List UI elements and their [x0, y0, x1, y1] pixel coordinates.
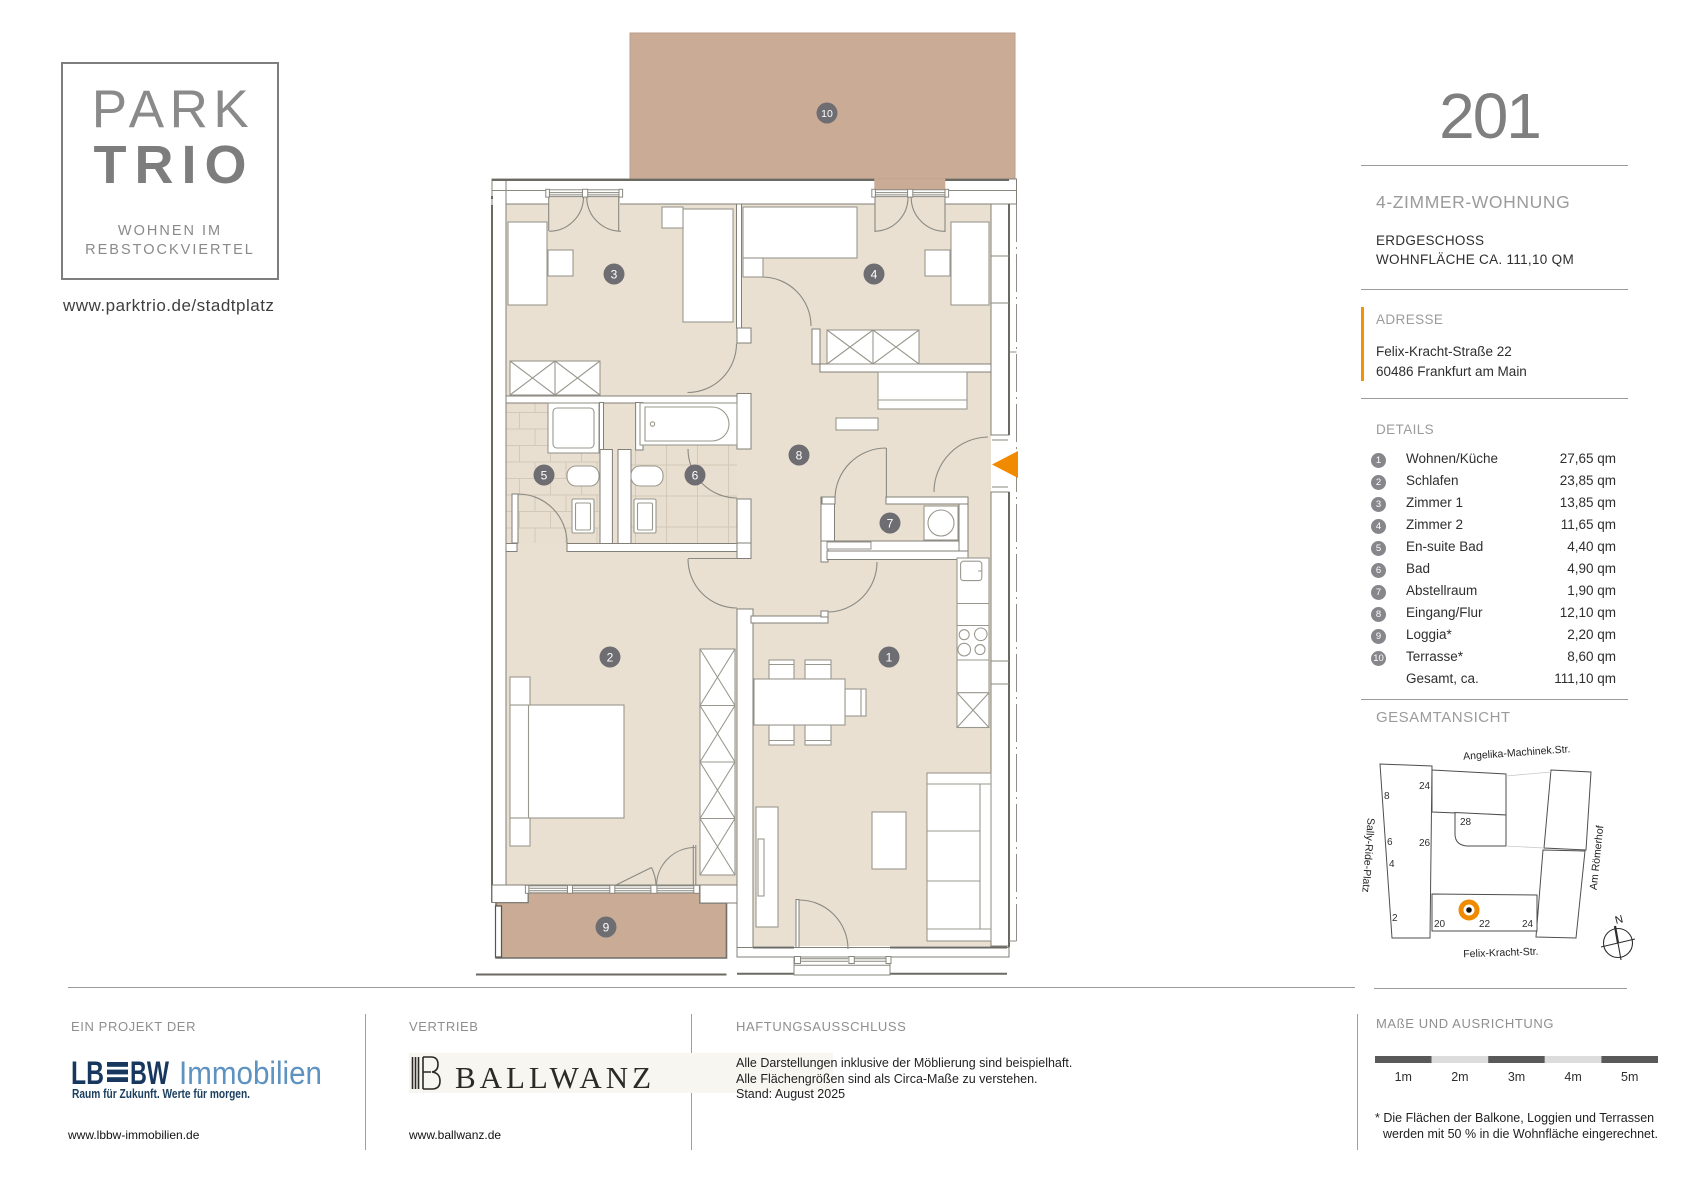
svg-text:24: 24: [1522, 919, 1534, 930]
svg-text:7: 7: [887, 517, 894, 531]
svg-text:24: 24: [1419, 781, 1431, 792]
svg-text:10: 10: [821, 108, 833, 120]
svg-text:5m: 5m: [1621, 1070, 1638, 1084]
svg-text:N: N: [1614, 913, 1625, 927]
svg-text:5: 5: [541, 469, 548, 483]
svg-text:4: 4: [1389, 859, 1395, 870]
svg-text:8: 8: [796, 449, 803, 463]
svg-text:28: 28: [1460, 817, 1472, 828]
svg-text:26: 26: [1419, 838, 1431, 849]
svg-text:9: 9: [603, 921, 610, 935]
svg-text:20: 20: [1434, 919, 1446, 930]
svg-text:2: 2: [1392, 913, 1398, 924]
svg-text:Angelika-Machinek.Str.: Angelika-Machinek.Str.: [1463, 743, 1571, 762]
svg-text:Sally-Ride-Platz: Sally-Ride-Platz: [1359, 818, 1376, 893]
svg-text:Am Römerhof: Am Römerhof: [1588, 825, 1607, 891]
svg-text:Felix-Kracht-Str.: Felix-Kracht-Str.: [1463, 946, 1539, 961]
svg-text:3: 3: [611, 268, 618, 282]
svg-text:4m: 4m: [1564, 1070, 1581, 1084]
svg-text:6: 6: [1387, 837, 1393, 848]
svg-text:4: 4: [871, 268, 878, 282]
svg-text:2m: 2m: [1451, 1070, 1468, 1084]
svg-text:8: 8: [1384, 791, 1390, 802]
svg-text:22: 22: [1479, 919, 1491, 930]
svg-text:1: 1: [886, 651, 893, 665]
svg-text:6: 6: [692, 469, 699, 483]
svg-text:2: 2: [607, 651, 614, 665]
svg-text:1m: 1m: [1395, 1070, 1412, 1084]
svg-text:3m: 3m: [1508, 1070, 1525, 1084]
